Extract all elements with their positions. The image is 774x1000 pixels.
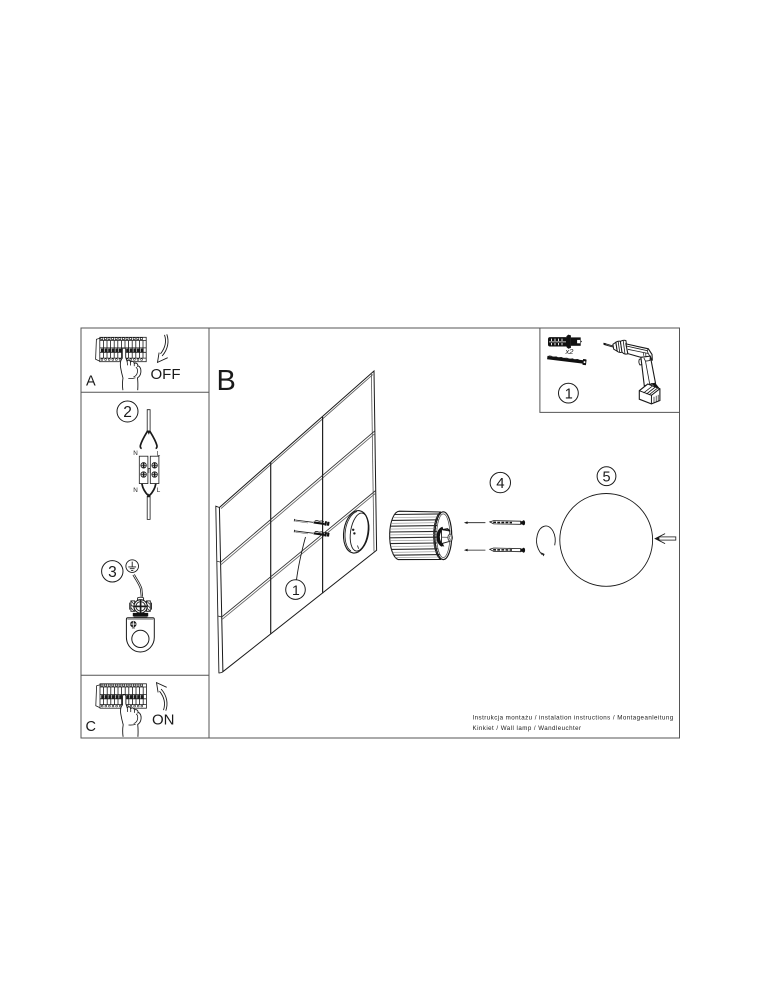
svg-text:C: C <box>86 719 96 735</box>
svg-text:2: 2 <box>123 404 132 421</box>
svg-text:B: B <box>217 365 236 397</box>
svg-text:N: N <box>133 450 138 457</box>
svg-text:3: 3 <box>108 564 117 581</box>
svg-text:L: L <box>157 451 161 458</box>
svg-text:OFF: OFF <box>151 366 181 383</box>
svg-text:L: L <box>157 487 161 494</box>
svg-text:A: A <box>86 374 96 390</box>
svg-text:x2: x2 <box>565 347 575 356</box>
svg-text:Kinkiet / Wall lamp / Wandleuc: Kinkiet / Wall lamp / Wandleuchter <box>473 725 582 732</box>
svg-text:ON: ON <box>152 711 175 728</box>
svg-text:N: N <box>133 487 138 494</box>
svg-text:1: 1 <box>565 386 573 402</box>
svg-text:4: 4 <box>496 475 504 492</box>
svg-text:Instrukcja montażu / instalati: Instrukcja montażu / instalation instruc… <box>473 715 674 722</box>
svg-text:1: 1 <box>292 582 300 598</box>
svg-text:5: 5 <box>603 470 611 486</box>
